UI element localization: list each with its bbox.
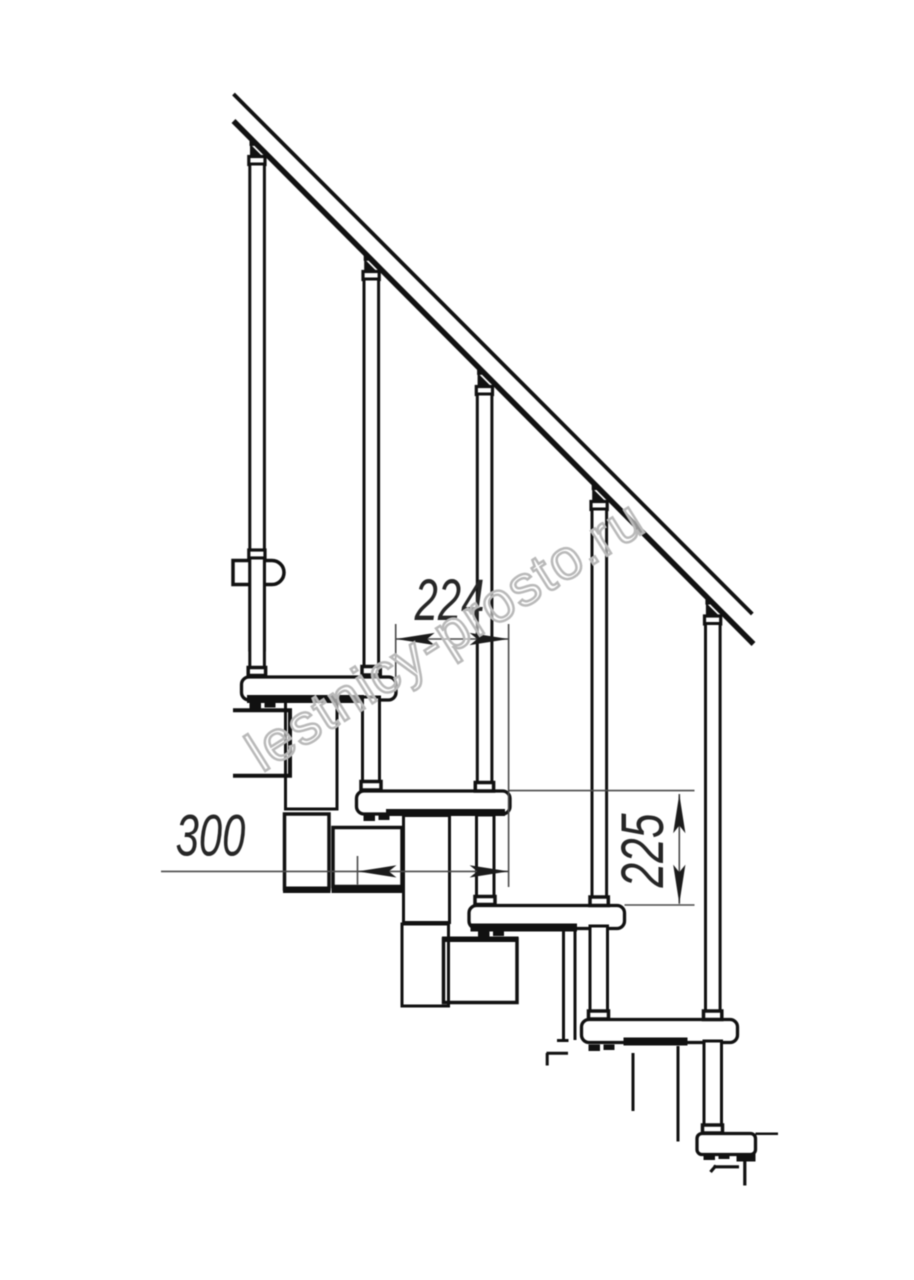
svg-text:300: 300 <box>176 803 246 868</box>
svg-text:225: 225 <box>610 813 677 888</box>
